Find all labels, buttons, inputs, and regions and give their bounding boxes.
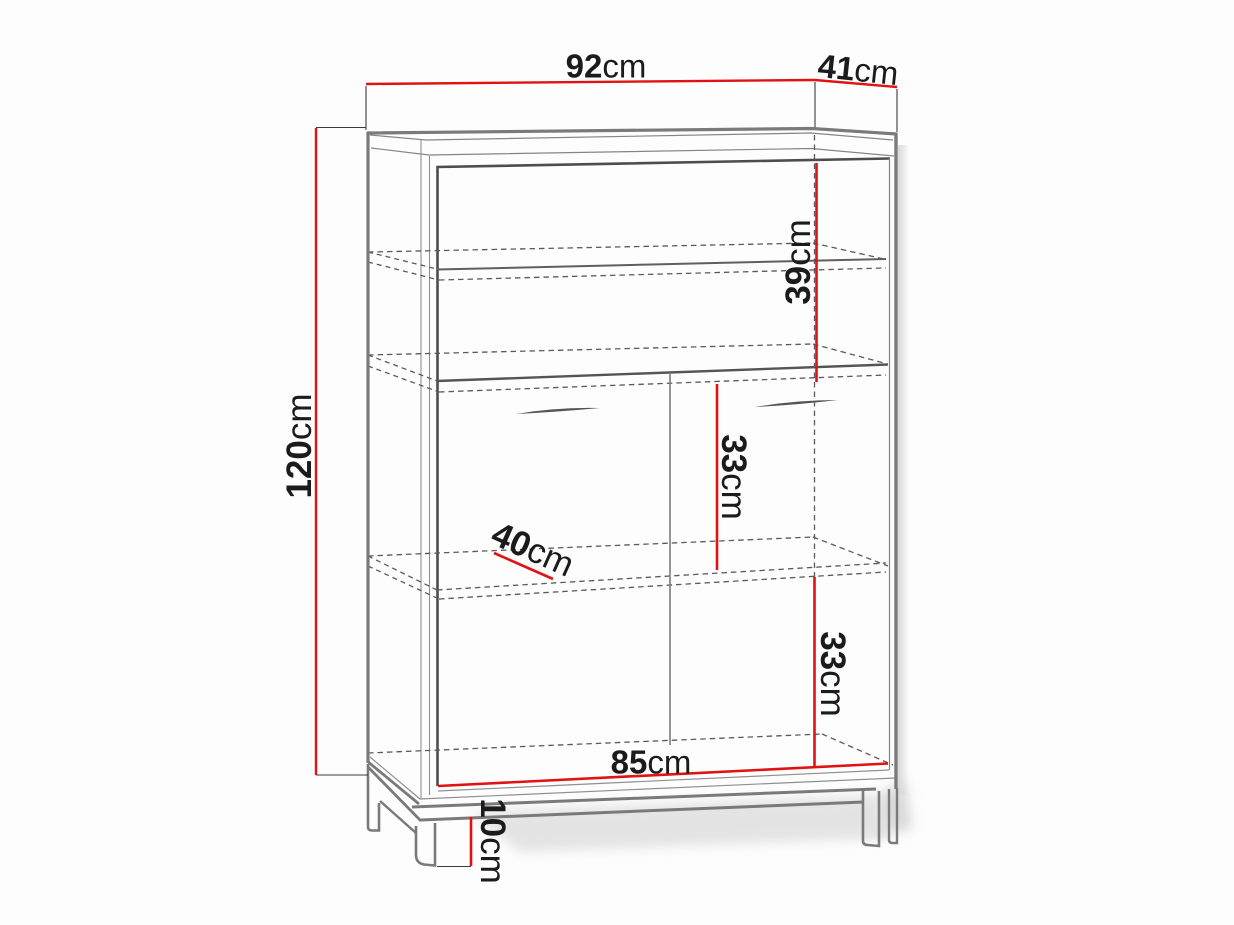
svg-text:33cm: 33cm — [813, 631, 852, 717]
svg-text:10cm: 10cm — [473, 798, 512, 884]
svg-text:39cm: 39cm — [779, 219, 818, 305]
svg-text:120cm: 120cm — [280, 393, 319, 498]
svg-text:40cm: 40cm — [486, 514, 580, 584]
svg-text:85cm: 85cm — [611, 744, 692, 781]
svg-text:92cm: 92cm — [566, 48, 647, 85]
svg-text:33cm: 33cm — [714, 434, 753, 520]
svg-text:41cm: 41cm — [816, 47, 900, 92]
